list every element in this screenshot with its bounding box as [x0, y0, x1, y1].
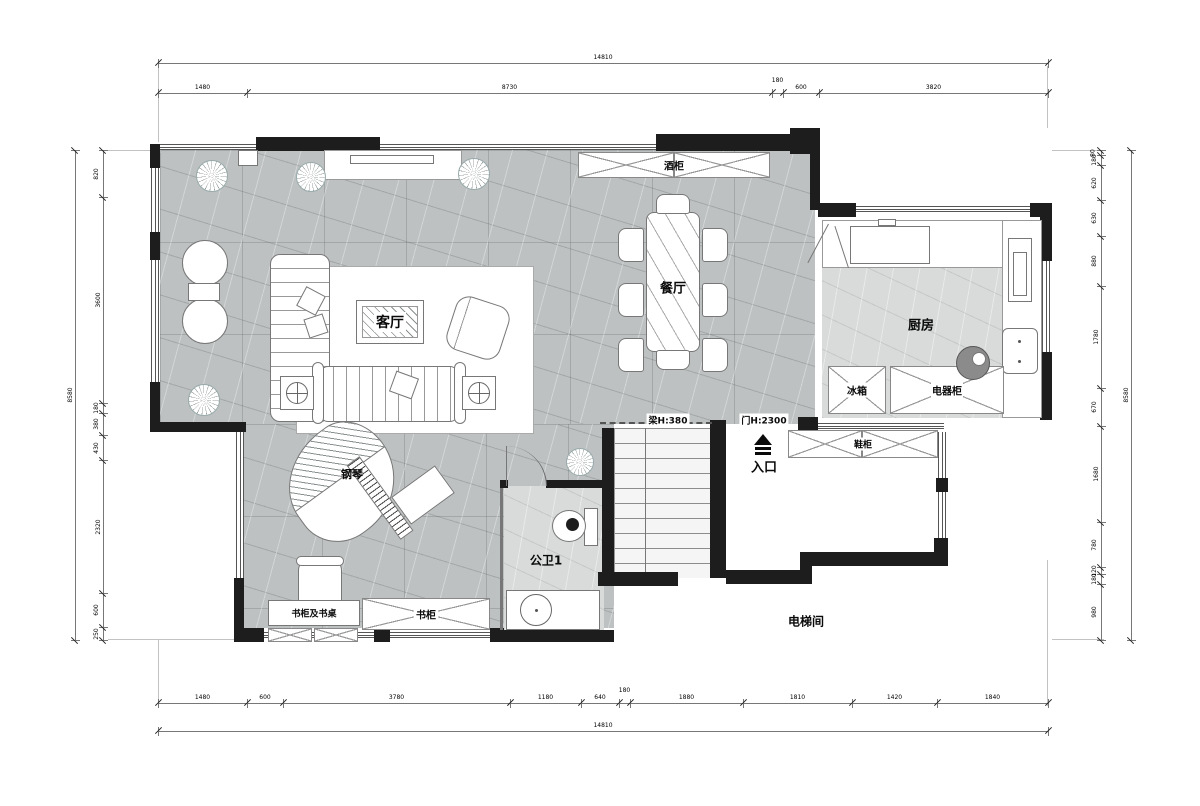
dim-value: 600	[259, 694, 270, 701]
window-wall	[818, 423, 944, 429]
dim-left-total: 8580	[66, 150, 80, 640]
shoe-cabinet	[788, 430, 862, 458]
shoe-cabinet-label: 鞋柜	[853, 438, 873, 451]
window-wall	[938, 492, 946, 538]
dim-bottom-total: 14810	[158, 722, 1048, 736]
wall	[150, 232, 160, 260]
entrance-label: 入口	[751, 457, 777, 476]
dim-value: 14810	[593, 722, 612, 729]
dim-value: 14810	[593, 54, 612, 61]
kitchen-sink	[1002, 328, 1038, 374]
dim-value: 8730	[502, 84, 517, 91]
wall	[150, 422, 246, 432]
dim-value: 980	[1091, 606, 1098, 617]
dim-value: 2320	[95, 519, 102, 534]
kitchen-tall-cabinet-inner	[1013, 252, 1027, 296]
dim-value: 3600	[95, 292, 102, 307]
dim-left-segments: 820 3600 180 380 430 2320 600 250	[94, 150, 108, 640]
extension-line	[1047, 560, 1048, 706]
sink-drain-dot	[535, 609, 538, 612]
sink-dot	[1018, 360, 1021, 363]
wall	[598, 572, 678, 586]
dim-value: 180	[1091, 573, 1098, 584]
stove	[850, 226, 930, 264]
dining-chair	[618, 283, 644, 317]
desk-chair-back	[296, 556, 344, 566]
fridge-label: 冰箱	[846, 383, 868, 398]
bookcase-desk-label: 书柜及书桌	[291, 607, 336, 620]
dim-value: 780	[1091, 539, 1098, 550]
wall	[546, 480, 606, 488]
dim-value: 3820	[926, 84, 941, 91]
dim-value: 1780	[1093, 329, 1100, 344]
toilet-seat-mark	[566, 518, 579, 531]
dim-value: 820	[93, 168, 100, 179]
dim-value: 1880	[679, 694, 694, 701]
wall	[256, 137, 380, 151]
shoe-cabinet	[862, 430, 938, 458]
desk-chair	[298, 560, 342, 604]
dim-value: 670	[1091, 401, 1098, 412]
lounge-chair	[182, 298, 228, 344]
wall	[234, 628, 264, 642]
dining-chair	[618, 228, 644, 262]
plant	[566, 448, 594, 476]
corner-box	[238, 150, 258, 166]
beam-annotation: 梁H:380	[647, 414, 690, 427]
staircase	[614, 428, 711, 578]
dim-top-segments: 1480 8730 180 600 3820	[158, 84, 1048, 98]
dim-value: 3780	[389, 694, 404, 701]
extension-line	[108, 150, 152, 151]
wall	[810, 150, 820, 210]
wine-cabinet	[674, 152, 770, 178]
person-head	[972, 352, 986, 366]
dining-chair	[702, 283, 728, 317]
sofa-bottom	[320, 366, 458, 422]
sink-dot	[1018, 340, 1021, 343]
wall	[800, 552, 812, 584]
plant	[196, 160, 228, 192]
wall	[500, 630, 614, 642]
wall	[818, 203, 856, 217]
wall	[936, 478, 948, 492]
dim-value: 1840	[985, 694, 1000, 701]
stair-rail	[645, 428, 646, 578]
wine-cabinet	[578, 152, 674, 178]
dining-chair	[618, 338, 644, 372]
lamp-icon	[286, 382, 308, 404]
bathroom-label: 公卫1	[530, 552, 562, 569]
wall	[150, 144, 160, 168]
floor-plan-canvas: 14810 1480 8730 180 600 3820 1480 600 37…	[0, 0, 1200, 806]
dining-chair	[702, 338, 728, 372]
dim-right-total: 8580	[1122, 150, 1136, 640]
dim-value: 8580	[67, 387, 74, 402]
dim-value: 600	[795, 84, 806, 91]
window-wall	[1042, 261, 1050, 353]
plant	[188, 384, 220, 416]
dim-value: 880	[1091, 255, 1098, 266]
wall	[800, 552, 948, 566]
window-wall	[151, 168, 159, 232]
dining-room-label: 餐厅	[660, 278, 686, 297]
kitchen-label: 厨房	[908, 315, 934, 334]
dining-chair	[702, 228, 728, 262]
extension-line	[158, 66, 159, 142]
dining-chair	[656, 350, 690, 370]
appliance-cabinet-label: 电器柜	[931, 383, 963, 398]
hood-switch	[878, 219, 896, 226]
plant	[296, 162, 326, 192]
lounge-chair	[182, 240, 228, 286]
toilet-tank	[584, 508, 598, 546]
wine-cabinet-label: 酒柜	[664, 158, 684, 173]
entrance-arrow-icon	[754, 434, 772, 445]
dining-chair	[656, 194, 690, 214]
dim-value: 8580	[1123, 387, 1130, 402]
window-wall	[856, 206, 1032, 212]
entrance-arrow-bar	[755, 447, 771, 450]
dim-value: 1420	[887, 694, 902, 701]
dim-value: 180	[619, 687, 630, 694]
window-wall	[390, 632, 490, 638]
dim-value: 600	[93, 604, 100, 615]
plant	[458, 158, 490, 190]
dim-right-segments: 80 180 620 630 880 1780 670 1680 780 120…	[1092, 150, 1106, 640]
dim-value: 630	[1091, 212, 1098, 223]
extension-line	[108, 639, 238, 640]
dim-value: 1680	[1093, 466, 1100, 481]
dim-value: 1180	[538, 694, 553, 701]
window-wall	[938, 432, 946, 480]
side-table-small	[188, 283, 220, 301]
dim-value: 640	[594, 694, 605, 701]
dim-value: 620	[1091, 177, 1098, 188]
wall	[656, 134, 792, 151]
wall	[710, 420, 726, 578]
dim-value: 180	[1091, 154, 1098, 165]
window-wall	[151, 260, 159, 382]
wall-line	[500, 488, 503, 630]
lamp-icon	[468, 382, 490, 404]
dim-bottom-segments: 1480 600 3780 1180 640 180 1880 1810 142…	[158, 694, 1048, 708]
dim-value: 1810	[790, 694, 805, 701]
door-height-annotation: 门H:2300	[739, 414, 788, 427]
elevator-label: 电梯间	[788, 613, 824, 630]
tv	[350, 155, 434, 164]
wall	[602, 428, 614, 574]
wall	[726, 570, 810, 584]
wall	[374, 628, 390, 642]
dim-value: 380	[93, 418, 100, 429]
dim-value: 430	[93, 442, 100, 453]
bookcase-label: 书柜	[414, 607, 438, 622]
dim-value: 1480	[195, 694, 210, 701]
living-room-label: 客厅	[374, 312, 406, 332]
dim-value: 180	[93, 402, 100, 413]
dim-value: 180	[772, 77, 783, 84]
entrance-arrow-bar	[755, 452, 771, 455]
piano-label: 钢琴	[341, 466, 363, 482]
window-wall	[236, 432, 244, 578]
cabinet-small	[314, 628, 358, 642]
cabinet-small	[268, 628, 312, 642]
dim-value: 1480	[195, 84, 210, 91]
dim-top-total: 14810	[158, 54, 1048, 68]
